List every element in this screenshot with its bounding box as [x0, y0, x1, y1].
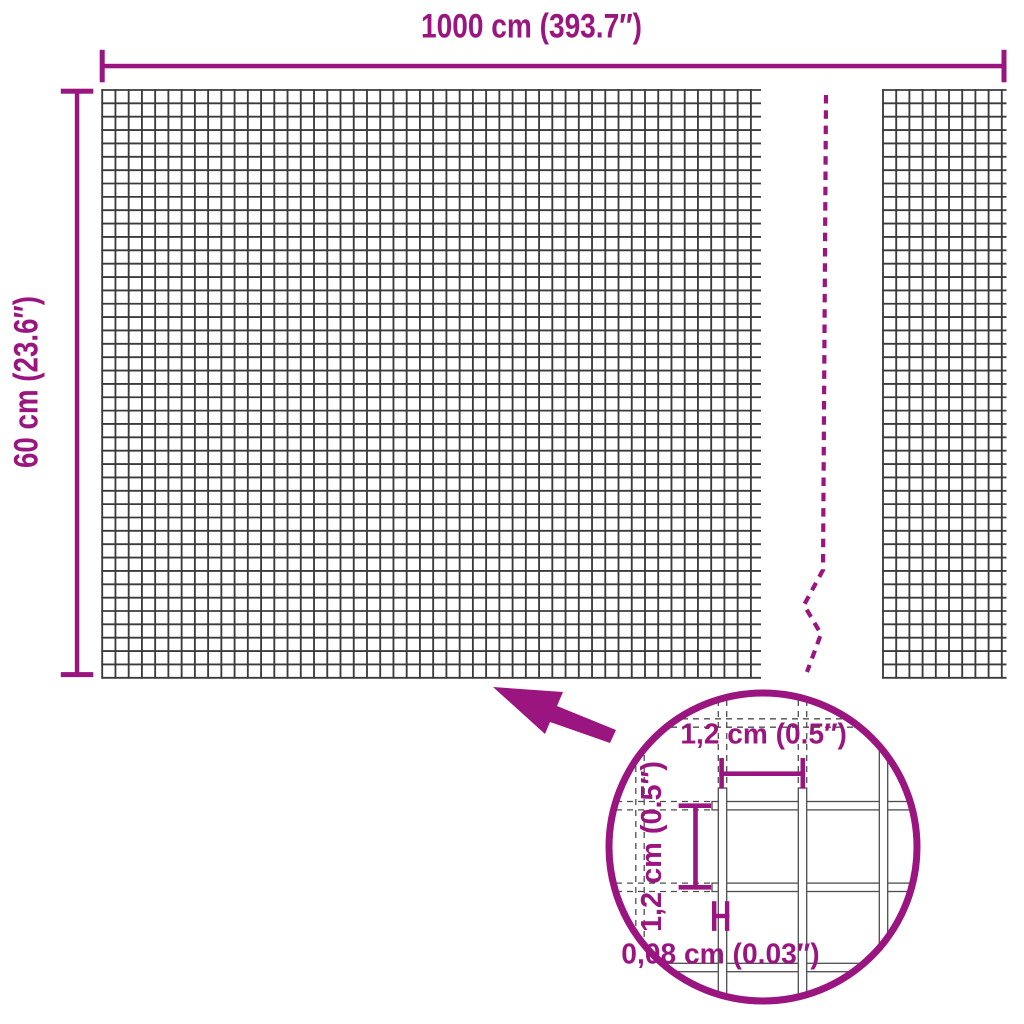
svg-text:1000 cm (393.7″): 1000 cm (393.7″): [421, 7, 642, 45]
svg-text:0,08 cm (0.03″): 0,08 cm (0.03″): [621, 939, 819, 971]
svg-text:1,2 cm (0.5″): 1,2 cm (0.5″): [636, 761, 668, 932]
svg-text:60 cm (23.6″): 60 cm (23.6″): [8, 296, 46, 468]
svg-text:1,2 cm (0.5″): 1,2 cm (0.5″): [680, 718, 847, 750]
